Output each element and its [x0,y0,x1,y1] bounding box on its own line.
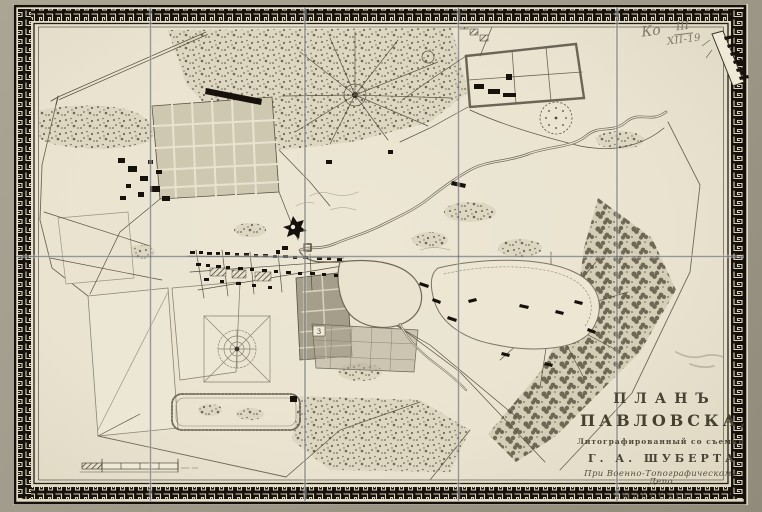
photographed-map-sheet: 3 [0,0,762,512]
title-plan-word: ПЛАНЪ [576,392,746,406]
title-subtitle: Литографированный со съемки [576,438,746,446]
title-author: Г. А. ШУБЕРТА [576,453,746,464]
plot-number-plaque: 3 [313,326,325,336]
title-place-word: ПАВЛОВСКА, [576,413,746,429]
catalog-fraction: III XII-19 [665,19,702,48]
title-year: MDCCCXLII. [576,493,746,501]
plot-number-label: 3 [317,328,321,336]
title-block: ПЛАНЪ ПАВЛОВСКА, Литографированный со съ… [576,392,746,501]
catalog-prefix: Ко [641,23,662,39]
title-publisher: При Военно-Топографическомъ Депо [576,470,746,487]
